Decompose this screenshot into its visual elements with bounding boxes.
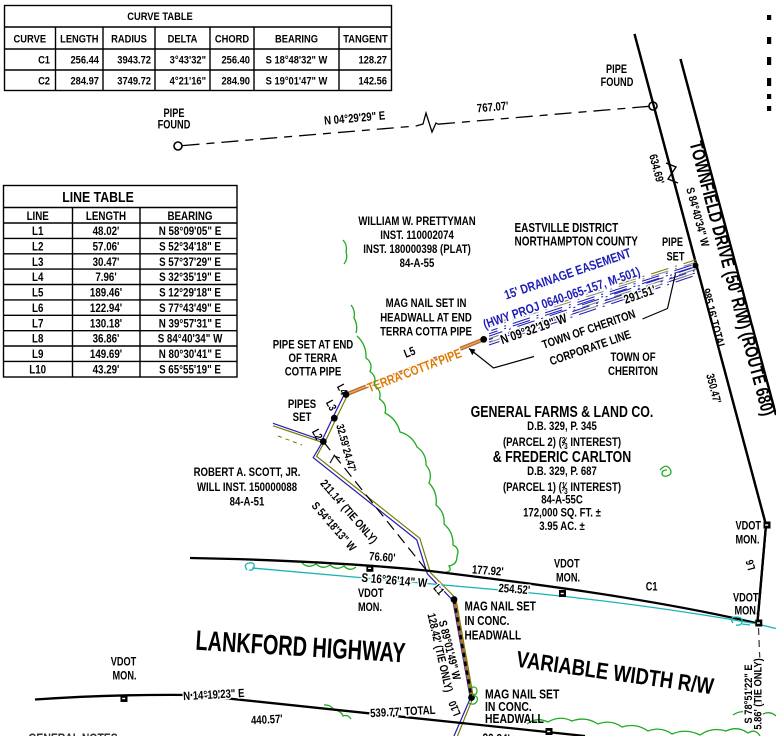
svg-text:C2: C2 [38, 76, 50, 88]
svg-text:440.57': 440.57' [251, 713, 284, 728]
svg-text:122.94': 122.94' [90, 302, 122, 315]
svg-text:N 80°30'41" E: N 80°30'41" E [159, 348, 221, 361]
svg-text:84-A-55C: 84-A-55C [541, 494, 583, 507]
svg-text:254.52': 254.52' [498, 582, 531, 597]
svg-text:S 52°34'18" E: S 52°34'18" E [159, 241, 221, 254]
svg-text:VDOT: VDOT [554, 559, 580, 571]
svg-text:149.69': 149.69' [90, 348, 122, 361]
svg-text:LENGTH: LENGTH [60, 34, 98, 46]
svg-text:N 39°57'31" E: N 39°57'31" E [159, 318, 221, 331]
svg-text:OF TERRA: OF TERRA [288, 352, 337, 365]
svg-text:FOUND: FOUND [158, 120, 191, 132]
svg-text:FOUND: FOUND [601, 77, 634, 89]
svg-text:L7: L7 [32, 318, 43, 331]
svg-text:CHORD: CHORD [215, 34, 249, 46]
svg-text:84-A-51: 84-A-51 [230, 496, 265, 509]
svg-text:PIPE SET AT END: PIPE SET AT END [273, 339, 354, 352]
svg-text:36.86': 36.86' [93, 333, 120, 346]
svg-text:COTTA PIPE: COTTA PIPE [285, 366, 341, 379]
svg-text:D.B. 329, P. 687: D.B. 329, P. 687 [527, 465, 597, 478]
svg-text:4°21'16": 4°21'16" [170, 76, 206, 88]
svg-text:N 58°09'05" E: N 58°09'05" E [159, 225, 221, 238]
svg-text:256.40: 256.40 [221, 55, 250, 67]
svg-text:HEADWALL: HEADWALL [465, 630, 522, 643]
svg-text:MON.: MON. [112, 671, 136, 683]
svg-text:L4: L4 [32, 271, 43, 284]
svg-text:SET: SET [667, 252, 685, 264]
svg-text:TOWN OF: TOWN OF [610, 351, 655, 364]
svg-text:L6: L6 [32, 302, 43, 315]
svg-text:BEARING: BEARING [275, 34, 318, 46]
svg-text:BEARING: BEARING [167, 210, 212, 223]
svg-text:284.90: 284.90 [221, 76, 250, 88]
svg-text:90.24': 90.24' [482, 732, 510, 736]
svg-text:GENERAL FARMS & LAND CO.: GENERAL FARMS & LAND CO. [471, 403, 654, 421]
svg-text:INST. 110002074: INST. 110002074 [380, 229, 454, 242]
svg-text:WILLIAM W. PRETTYMAN: WILLIAM W. PRETTYMAN [358, 215, 475, 228]
svg-text:L10: L10 [29, 364, 46, 377]
svg-text:L3: L3 [32, 256, 43, 269]
svg-text:LENGTH: LENGTH [86, 210, 126, 223]
svg-text:PIPE: PIPE [606, 64, 627, 76]
svg-text:C1: C1 [646, 582, 658, 594]
svg-text:172,000 SQ. FT. ±: 172,000 SQ. FT. ± [523, 507, 601, 520]
svg-text:IN CONC.: IN CONC. [465, 615, 510, 628]
svg-text:256.44: 256.44 [70, 55, 99, 67]
svg-text:GENERAL NOTES: GENERAL NOTES [28, 731, 117, 736]
svg-text:HEADWALL AT END: HEADWALL AT END [380, 312, 472, 325]
svg-text:S 19°01'47" W: S 19°01'47" W [266, 76, 328, 88]
svg-text:TERRA COTTA PIPE: TERRA COTTA PIPE [380, 326, 472, 339]
svg-text:ROBERT A. SCOTT, JR.: ROBERT A. SCOTT, JR. [194, 466, 301, 479]
svg-text:S 32°35'19" E: S 32°35'19" E [159, 271, 221, 284]
svg-text:84-A-55: 84-A-55 [400, 257, 435, 270]
svg-text:S 57°37'29" E: S 57°37'29" E [159, 256, 221, 269]
svg-text:MON.: MON. [556, 573, 580, 585]
svg-text:DELTA: DELTA [168, 34, 198, 46]
svg-text:3.95 AC. ±: 3.95 AC. ± [539, 520, 584, 533]
svg-text:CHERITON: CHERITON [608, 365, 658, 378]
svg-text:177.92': 177.92' [471, 563, 504, 578]
svg-text:& FREDERIC CARLTON: & FREDERIC CARLTON [493, 448, 631, 466]
svg-text:S 12°29'18" E: S 12°29'18" E [159, 287, 221, 300]
svg-text:CURVE: CURVE [14, 34, 47, 46]
svg-text:INST. 180000398 (PLAT): INST. 180000398 (PLAT) [363, 243, 471, 256]
svg-text:VDOT: VDOT [358, 588, 384, 600]
svg-text:MON.: MON. [734, 606, 758, 618]
svg-text:767.07': 767.07' [476, 100, 509, 116]
svg-text:142.56: 142.56 [358, 76, 387, 88]
svg-text:PIPES: PIPES [288, 398, 316, 411]
svg-text:76.60': 76.60' [369, 550, 397, 565]
svg-text:RADIUS: RADIUS [111, 34, 147, 46]
svg-text:3943.72: 3943.72 [117, 55, 151, 67]
svg-text:30.47': 30.47' [93, 256, 120, 269]
svg-text:VDOT: VDOT [733, 593, 759, 605]
svg-text:L5: L5 [32, 287, 43, 300]
svg-text:57.06': 57.06' [93, 241, 120, 254]
svg-text:PIPE: PIPE [662, 237, 683, 249]
svg-text:SET: SET [293, 411, 312, 424]
svg-text:L8: L8 [32, 333, 43, 346]
svg-text:130.18': 130.18' [90, 318, 122, 331]
svg-text:MAG NAIL SET IN: MAG NAIL SET IN [386, 297, 467, 310]
svg-text:L9: L9 [32, 348, 43, 361]
svg-text:48.02': 48.02' [93, 225, 120, 238]
svg-text:L1: L1 [32, 225, 43, 238]
svg-text:S 84°40'34" W: S 84°40'34" W [158, 333, 223, 346]
svg-text:S 65°55'19" E: S 65°55'19" E [159, 364, 221, 377]
svg-text:C1: C1 [38, 55, 50, 67]
svg-text:WILL INST. 150000088: WILL INST. 150000088 [197, 481, 297, 494]
svg-text:L2: L2 [32, 241, 43, 254]
svg-text:S 18°48'32" W: S 18°48'32" W [266, 55, 328, 67]
svg-text:VDOT: VDOT [735, 521, 761, 533]
svg-text:128.27: 128.27 [358, 55, 387, 67]
svg-text:D.B. 329, P. 345: D.B. 329, P. 345 [527, 420, 597, 433]
svg-text:MON.: MON. [358, 602, 382, 614]
svg-text:HEADWALL: HEADWALL [485, 712, 544, 726]
svg-text:43.29': 43.29' [93, 364, 120, 377]
svg-text:VDOT: VDOT [111, 657, 137, 669]
svg-text:284.97: 284.97 [70, 76, 99, 88]
svg-text:MAG NAIL SET: MAG NAIL SET [465, 601, 536, 614]
svg-text:LINE: LINE [27, 210, 49, 223]
svg-text:PIPE: PIPE [164, 108, 185, 120]
svg-text:7.96': 7.96' [95, 271, 116, 284]
svg-text:S 77°43'49" E: S 77°43'49" E [159, 302, 221, 315]
svg-text:NORTHAMPTON COUNTY: NORTHAMPTON COUNTY [515, 236, 639, 249]
svg-text:MON.: MON. [735, 535, 759, 547]
svg-text:TANGENT: TANGENT [343, 34, 388, 46]
svg-text:5.86' (TIE ONLY): 5.86' (TIE ONLY) [753, 658, 765, 729]
svg-text:189.46': 189.46' [90, 287, 122, 300]
svg-text:CURVE TABLE: CURVE TABLE [127, 11, 193, 23]
svg-text:LINE TABLE: LINE TABLE [62, 189, 134, 205]
svg-text:3°43'32": 3°43'32" [170, 55, 206, 67]
svg-text:3749.72: 3749.72 [117, 76, 151, 88]
svg-text:EASTVILLE DISTRICT: EASTVILLE DISTRICT [515, 222, 619, 235]
